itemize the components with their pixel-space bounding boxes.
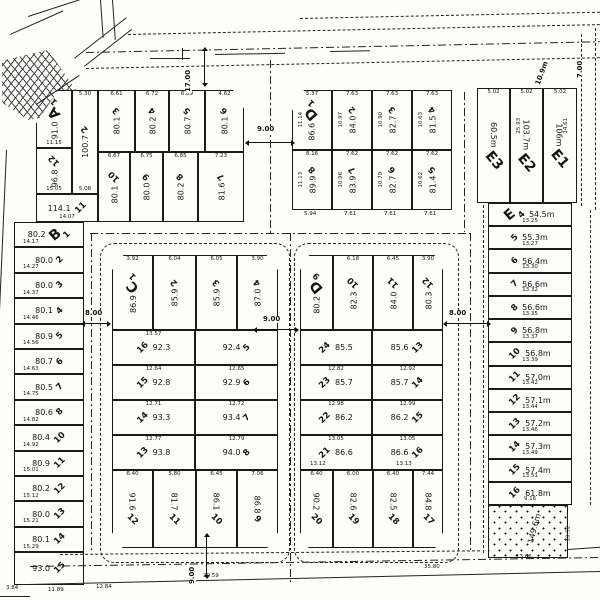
lot-area: 93.8	[153, 448, 171, 457]
lot-area: 84.0	[347, 116, 356, 134]
parcel-e9: 956.8m13.37	[488, 319, 572, 342]
dim-label: 11.15	[37, 141, 71, 147]
dim-label: 12.79	[196, 437, 277, 443]
dim-label: 13.05	[373, 437, 442, 443]
subdivision-plat-map: 91.0A111.15100.725.305.0896.81215.05114.…	[0, 0, 600, 600]
lot-area: 85.9	[170, 288, 179, 306]
top-street-width-arrow	[246, 142, 294, 143]
parcel-dtop8: 89.988.1611.13	[292, 150, 332, 210]
lot-area: 93.4	[223, 413, 241, 422]
dim-label: 7.62	[373, 152, 411, 158]
lot-number: 22	[317, 410, 332, 425]
lot-area: 96.8	[50, 170, 59, 188]
parcel-dtop2: 84.027.6310.97	[332, 90, 372, 150]
lot-area: 86.2	[391, 413, 409, 422]
parcel-dtop6: 82.767.6210.79	[372, 150, 412, 210]
dim-label: 13.25	[489, 219, 571, 225]
lot-area: 86.6	[391, 448, 409, 457]
lot-number: 12	[420, 274, 435, 289]
lot-area: 89.9	[307, 176, 316, 194]
lot-area: 80.0	[32, 510, 50, 519]
block-letter: D	[302, 104, 322, 123]
parcel-c8: 94.0812.79	[195, 435, 278, 470]
dim-label: 14.56	[23, 341, 39, 347]
dim-label: 12.72	[196, 402, 277, 408]
dim-label: 6.40	[113, 472, 152, 478]
lot-number: 15	[52, 561, 67, 576]
lot-area: 82.7	[387, 176, 396, 194]
lot-area: 91.0	[50, 121, 59, 139]
dim-label: 13.32	[489, 288, 571, 294]
lot-area: 86.8	[253, 496, 262, 514]
road-width-label: 17.00	[185, 69, 192, 93]
lot-area: 80.1	[35, 306, 53, 315]
dim-label: 7.61	[424, 212, 436, 218]
lot-area: 82.6	[349, 493, 358, 511]
lot-area: 85.6	[391, 343, 409, 352]
east-ring-width-arrow	[444, 323, 490, 324]
parcel-b15: 93.015	[14, 552, 84, 585]
dim-label: 15.05	[37, 187, 71, 193]
dim-label: 6.40	[301, 472, 332, 478]
lot-number: 10	[345, 274, 360, 289]
lot-number: 4	[252, 276, 263, 287]
lot-number: 5	[426, 164, 437, 175]
top-road-far-edge	[300, 12, 600, 19]
dim-label: 14.46	[23, 316, 39, 322]
parcel-e16: 1661.8m9.16	[488, 482, 572, 505]
dim-label: 13.42	[489, 381, 571, 387]
boundary-dim-label: 3.84	[6, 586, 18, 592]
parcel-c9: 86.897.06	[237, 470, 278, 548]
parcel-a5: 80.756.89	[169, 90, 205, 152]
road-width-label: 9.00	[262, 316, 281, 323]
dim-label: 14.92	[23, 443, 39, 449]
lot-number: 20	[309, 512, 324, 527]
lot-number: 13	[411, 340, 426, 355]
dim-label: 12.98	[301, 402, 371, 408]
block-letter: B	[46, 225, 64, 244]
lot-number: 5	[181, 105, 192, 116]
parcel-b6: 80.7614.63	[14, 349, 84, 374]
lot-area: 87.0	[253, 288, 262, 306]
lot-area: 80.2	[176, 183, 185, 201]
dim-label: 5.94	[304, 212, 316, 218]
lot-number: 21	[317, 445, 332, 460]
lot-area: 80.1	[220, 117, 229, 135]
road-width-label: 9.00	[189, 566, 196, 585]
lot-area: 91.6	[128, 493, 137, 511]
parcel-b1: 80.2B114.17	[14, 222, 84, 247]
lot-area: 80.5	[35, 383, 53, 392]
parcel-d10: 82.3106.18	[333, 255, 373, 330]
lot-number: 16	[411, 445, 426, 460]
lot-area: 80.1	[32, 535, 50, 544]
dim-label: 10.96	[339, 172, 345, 188]
lot-number: 13	[52, 506, 67, 521]
block-letter: E2	[514, 150, 539, 175]
lot-number: 12	[52, 481, 67, 496]
lot-number: 10	[52, 430, 67, 445]
lot-number: 11	[73, 200, 88, 215]
lot-area: 81.4	[427, 176, 436, 194]
lot-number: 8	[242, 447, 253, 458]
parcel-e1: 106mE15.0214.61	[543, 88, 577, 203]
parcel-b14: 80.11415.29	[14, 527, 84, 552]
parcel-d23: 2385.712.82	[300, 365, 372, 400]
dim-label: 5.02	[544, 90, 576, 96]
parcel-b3: 80.0314.37	[14, 273, 84, 298]
parcel-c5: 92.45	[195, 330, 278, 365]
lot-area: 85.7	[335, 378, 353, 387]
dim-label: 6.18	[334, 257, 372, 263]
east-road-edge	[483, 205, 484, 553]
parcel-dtop7: 83.977.6210.96	[332, 150, 372, 210]
parcel-a8: 80.286.85	[163, 152, 198, 222]
lot-number: 23	[317, 375, 332, 390]
lot-area: 80.3	[424, 291, 433, 309]
lot-area: 80.0	[35, 281, 53, 290]
dim-label: 14.61	[564, 118, 570, 134]
lot-area: 82.3	[349, 291, 358, 309]
dim-label: 8.16	[293, 152, 331, 158]
dim-label: 6.05	[197, 257, 236, 263]
parcel-dtop1: 86.6D15.3711.14	[292, 90, 332, 150]
ring-road-north-centerline	[90, 233, 472, 234]
dim-label: 7.06	[238, 472, 277, 478]
lot-area: 92.4	[223, 343, 241, 352]
lot-number: 3	[111, 105, 122, 116]
parcel-b4: 80.1414.46	[14, 298, 84, 323]
parcel-b5: 80.9514.56	[14, 324, 84, 349]
lot-area: 114.1	[48, 204, 71, 213]
dim-label: 13.27	[489, 242, 571, 248]
dim-label: 10.62	[419, 172, 425, 188]
lot-number: 8	[306, 164, 317, 175]
parcel-a2: 100.725.305.08	[72, 90, 98, 194]
lot-number: 4	[54, 305, 65, 316]
parcel-b2: 80.0214.27	[14, 247, 84, 272]
parcel-e13: 1357.2m13.46	[488, 412, 572, 435]
dim-label: 13.30	[489, 265, 571, 271]
parcel-d9: 80.2D9	[300, 255, 333, 330]
lot-number: 14	[411, 375, 426, 390]
parcel-a9: 80.096.75	[130, 152, 163, 222]
parcel-b11: 80.91115.01	[14, 451, 84, 476]
dim-label: 7.62	[413, 152, 451, 158]
top-street-centerline	[270, 60, 271, 234]
dim-label: 10.97	[339, 112, 345, 128]
parcel-e4: E454.5m13.25	[488, 203, 572, 226]
dim-label: 12.82	[301, 367, 371, 373]
dim-label: 11.13	[299, 172, 305, 188]
parcel-d13: 85.613	[372, 330, 443, 365]
lot-area: 86.2	[335, 413, 353, 422]
lot-area: 81.7	[170, 493, 179, 511]
lot-number: 2	[54, 254, 65, 265]
lot-area: 86.9	[128, 295, 137, 313]
dim-label: 25.93	[517, 118, 523, 134]
lot-area: 80.9	[35, 332, 53, 341]
median-tick	[182, 48, 183, 60]
parcel-e7: 756.6m13.32	[488, 273, 572, 296]
lot-number: 11	[52, 456, 67, 471]
dim-label: 13.13	[396, 462, 412, 468]
boundary-dim-label: 12.84	[96, 585, 112, 591]
lot-number: 7	[215, 171, 226, 182]
parcel-d20: 90.2206.40	[300, 470, 333, 548]
parcel-b12: 80.21215.12	[14, 476, 84, 501]
lot-number: 7	[346, 164, 357, 175]
dim-label: 13.46	[489, 428, 571, 434]
lot-area: 80.7	[182, 117, 191, 135]
parcel-c11: 81.7115.80	[153, 470, 196, 548]
parcel-c7: 93.4712.72	[195, 400, 278, 435]
lot-number: 8	[54, 407, 65, 418]
dim-label: 7.23	[199, 154, 243, 160]
lot-number: 6	[242, 377, 253, 388]
dim-label: 14.63	[23, 367, 39, 373]
parcel-e15: 1557.4m13.51	[488, 459, 572, 482]
parcel-c14: 1493.312.71	[112, 400, 195, 435]
west-boundary-line	[0, 150, 7, 598]
lot-area: 80.0	[142, 183, 151, 201]
dim-label: 13.05	[301, 437, 371, 443]
parcel-e3: 60.5mE35.02	[477, 88, 510, 203]
dim-label: 14.07	[37, 215, 97, 221]
lot-area: 80.9	[32, 459, 50, 468]
dim-label: 13.49	[489, 451, 571, 457]
dim-label: 5.37	[293, 92, 331, 98]
dim-label: 12.92	[373, 367, 442, 373]
parcel-e2: 103.7mE25.0225.93	[510, 88, 543, 203]
median-segment	[150, 58, 190, 59]
parcel-e11: 1157.0m13.42	[488, 366, 572, 389]
dim-label: 13.44	[489, 405, 571, 411]
dim-label: 7.63	[373, 92, 411, 98]
parcel-d11: 84.0116.45	[373, 255, 413, 330]
parcel-c16: 1692.313.57	[112, 330, 195, 365]
parcel-d18: 82.5186.40	[373, 470, 413, 548]
lot-area: 80.1	[112, 117, 121, 135]
top-road-width-arrow	[204, 48, 205, 86]
lot-number: 9	[141, 171, 152, 182]
parcel-a12: 96.81215.05	[36, 148, 72, 194]
southeast-boundary-step	[568, 547, 600, 550]
parcel-c6: 92.9612.65	[195, 365, 278, 400]
parcel-c15: 1592.812.64	[112, 365, 195, 400]
dim-label: 15.29	[23, 545, 39, 551]
parcel-a6: 80.164.62	[205, 90, 244, 152]
lot-area: 86.6	[335, 448, 353, 457]
south-street-width-arrow	[206, 534, 207, 578]
dim-label: 6.04	[154, 257, 195, 263]
parcel-c1: 86.9C13.92	[112, 255, 153, 330]
lot-number: 7	[242, 412, 253, 423]
parcel-d14: 85.71412.92	[372, 365, 443, 400]
lot-area: 103.7m	[522, 119, 531, 150]
dim-label: 11.14	[299, 112, 305, 128]
lot-number: 10	[209, 512, 224, 527]
east-ring-centerline	[470, 233, 471, 552]
dim-label: 7.61	[384, 212, 396, 218]
right-boundary	[595, 28, 596, 210]
lot-number: 12	[125, 512, 140, 527]
top-road-south-edge	[86, 57, 600, 69]
dim-label: 5.02	[478, 90, 509, 96]
parcel-b10: 80.41014.92	[14, 425, 84, 450]
dim-label: 6.67	[99, 154, 129, 160]
dim-label: 7.63	[333, 92, 371, 98]
lot-area: 94.0	[223, 448, 241, 457]
lot-number: 13	[135, 445, 150, 460]
dim-label: 5.30	[73, 92, 97, 98]
dim-label: 14.27	[23, 265, 39, 271]
parcel-c3: 85.936.05	[196, 255, 237, 330]
dim-label: 13.12	[310, 462, 326, 468]
boundary-dim-label: 11.89	[48, 588, 64, 594]
dim-label: 13.35	[489, 312, 571, 318]
parcel-c10: 86.1106.45	[196, 470, 237, 548]
dim-label: 13.37	[489, 335, 571, 341]
lot-area: 86.1	[212, 493, 221, 511]
dim-label: 14.17	[23, 240, 39, 246]
dim-label: 12.77	[113, 437, 194, 443]
lot-area: 80.2	[312, 295, 321, 313]
south-boundary-line	[28, 571, 600, 585]
parcel-b7: 80.5714.75	[14, 374, 84, 399]
parcel-b13: 80.01315.21	[14, 501, 84, 526]
road-width-label: 7.00	[577, 60, 584, 79]
parcel-c13: 1393.812.77	[112, 435, 195, 470]
lot-number: 11	[167, 512, 182, 527]
dim-label: 6.61	[99, 92, 134, 98]
lot-number: 11	[385, 274, 400, 289]
lot-number: 18	[385, 512, 400, 527]
lot-area: 83.9	[347, 176, 356, 194]
dim-label: 10.79	[379, 172, 385, 188]
dim-label: 6.75	[131, 154, 162, 160]
lot-area: 80.2	[28, 230, 46, 239]
block-letter: E3	[481, 147, 506, 172]
lot-number: 14	[135, 410, 150, 425]
lot-area: 90.2	[312, 493, 321, 511]
parcel-b8: 80.6814.82	[14, 400, 84, 425]
dim-label: 4.62	[206, 92, 243, 98]
parcel-d22: 2286.212.98	[300, 400, 372, 435]
lot-number: 9	[252, 514, 263, 525]
lot-number: 10	[106, 169, 121, 184]
parcel-reserve: 149.6m	[488, 505, 568, 558]
lot-area: 60.5m	[489, 122, 498, 148]
dim-label: 14.37	[23, 291, 39, 297]
dim-label: 15.21	[23, 519, 39, 525]
parcel-d15: 86.21512.99	[372, 400, 443, 435]
lot-number: 16	[135, 340, 150, 355]
south-corner-line	[0, 596, 30, 597]
top-road-edge	[128, 24, 600, 35]
north-access-road-edge	[112, 0, 116, 40]
north-access-road-edge	[100, 0, 104, 38]
lot-number: 8	[175, 171, 186, 182]
center-street-centerline	[290, 233, 291, 585]
lot-number: 3	[211, 276, 222, 287]
lot-number: 24	[317, 340, 332, 355]
parcel-e6: 656.4m13.30	[488, 249, 572, 272]
parcel-c2: 85.926.04	[153, 255, 196, 330]
dim-label: 6.85	[164, 154, 197, 160]
dim-label: 6.45	[197, 472, 236, 478]
dim-label: 14.75	[23, 392, 39, 398]
lot-area: 85.5	[335, 343, 353, 352]
parcel-e8: 856.6m13.35	[488, 296, 572, 319]
lot-number: 17	[420, 512, 435, 527]
parcel-e10: 1056.8m13.39	[488, 342, 572, 365]
lot-area: 92.8	[153, 378, 171, 387]
dim-label: 5.02	[511, 90, 542, 96]
dim-label: 6.72	[136, 92, 168, 98]
parcel-d19: 82.6196.00	[333, 470, 373, 548]
dim-label: 15.12	[23, 494, 39, 500]
dim-label: 13.57	[113, 332, 194, 338]
dim-label: 6.00	[334, 472, 372, 478]
dim-label: 15.01	[23, 468, 39, 474]
road-width-label: 8.00	[84, 310, 103, 317]
west-ring-width-arrow	[82, 323, 110, 324]
parcel-c12: 91.6126.40	[112, 470, 153, 548]
lot-area: 84.0	[389, 291, 398, 309]
lot-area: 85.7	[391, 378, 409, 387]
lot-number: 12	[46, 153, 61, 168]
right-edge-lower	[590, 210, 591, 505]
dim-label: 13.39	[489, 358, 571, 364]
lot-area: 86.6	[308, 123, 317, 141]
dim-label: 5.08	[73, 187, 97, 193]
lot-number: 3	[54, 280, 65, 291]
lot-area: 85.9	[212, 288, 221, 306]
parcel-a3: 80.136.61	[98, 90, 135, 152]
center-street-width-arrow	[254, 329, 298, 330]
lot-number: 3	[386, 104, 397, 115]
lot-area: 81.6	[216, 183, 225, 201]
parcel-a11: 114.11114.07	[36, 194, 98, 222]
lot-area: 92.9	[223, 378, 241, 387]
parcel-e12: 1257.1m13.44	[488, 389, 572, 412]
east-lane-centerline	[464, 92, 465, 232]
dim-label: 12.99	[373, 402, 442, 408]
dim-label: 7.63	[413, 92, 451, 98]
median-segment	[330, 50, 370, 52]
northwest-diagonal-road-edge	[84, 29, 132, 67]
parcel-e5: 555.3m13.27	[488, 226, 572, 249]
curve-radius-label: 10.9m	[534, 60, 550, 87]
parcel-e14: 1457.3m13.49	[488, 435, 572, 458]
lot-number: 2	[346, 104, 357, 115]
lot-area: 84.8	[424, 493, 433, 511]
lot-number: 2	[169, 276, 180, 287]
lot-area: 82.5	[389, 493, 398, 511]
lot-area: 80.1	[110, 186, 119, 204]
parcel-d12: 80.3123.90	[413, 255, 443, 330]
lot-area: 80.0	[35, 256, 53, 265]
lot-number: 5	[54, 331, 65, 342]
lot-area: 80.6	[35, 408, 53, 417]
lot-number: 14	[52, 532, 67, 547]
parcel-a10: 80.1106.67	[98, 152, 130, 222]
lot-number: 15	[135, 375, 150, 390]
lot-area: 80.7	[35, 357, 53, 366]
lot-area: 80.2	[32, 484, 50, 493]
